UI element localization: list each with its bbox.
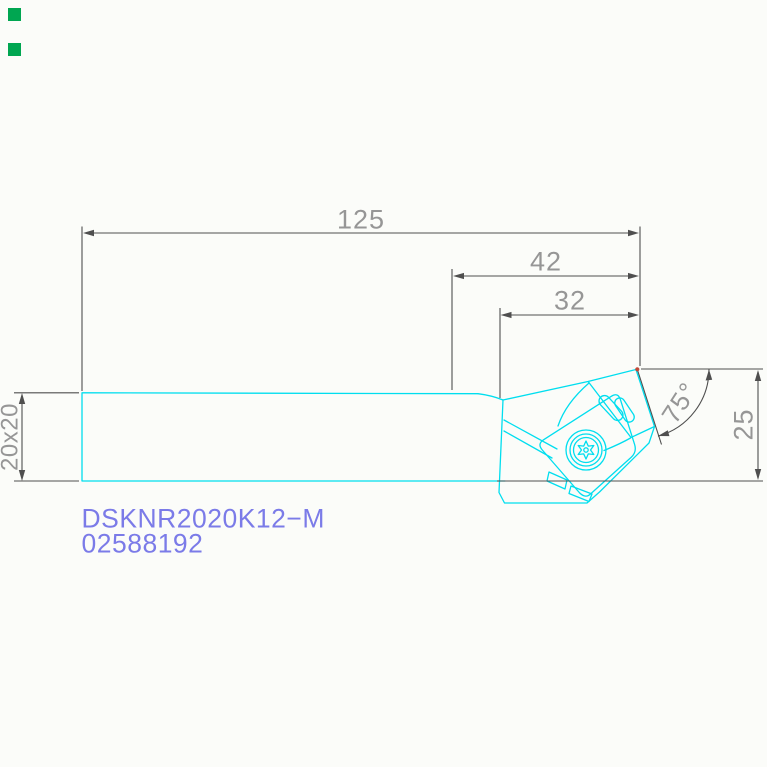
drawing-background [0, 0, 767, 767]
green-marker-bottom [8, 43, 21, 56]
dim-label-25: 25 [729, 408, 759, 440]
dim-label-42: 42 [530, 247, 562, 277]
technical-drawing-canvas: 125 42 32 25 20x20 75° DSKNR2020K12−M 02… [0, 0, 767, 767]
green-marker-top [8, 8, 21, 21]
dim-label-125: 125 [337, 205, 385, 235]
cutting-point-marker [635, 367, 639, 371]
tool-drawing-svg: 125 42 32 25 20x20 75° DSKNR2020K12−M 02… [0, 0, 767, 767]
dim-label-32: 32 [554, 286, 586, 316]
dim-label-20x20: 20x20 [0, 403, 24, 471]
product-order-number: 02588192 [82, 529, 204, 559]
